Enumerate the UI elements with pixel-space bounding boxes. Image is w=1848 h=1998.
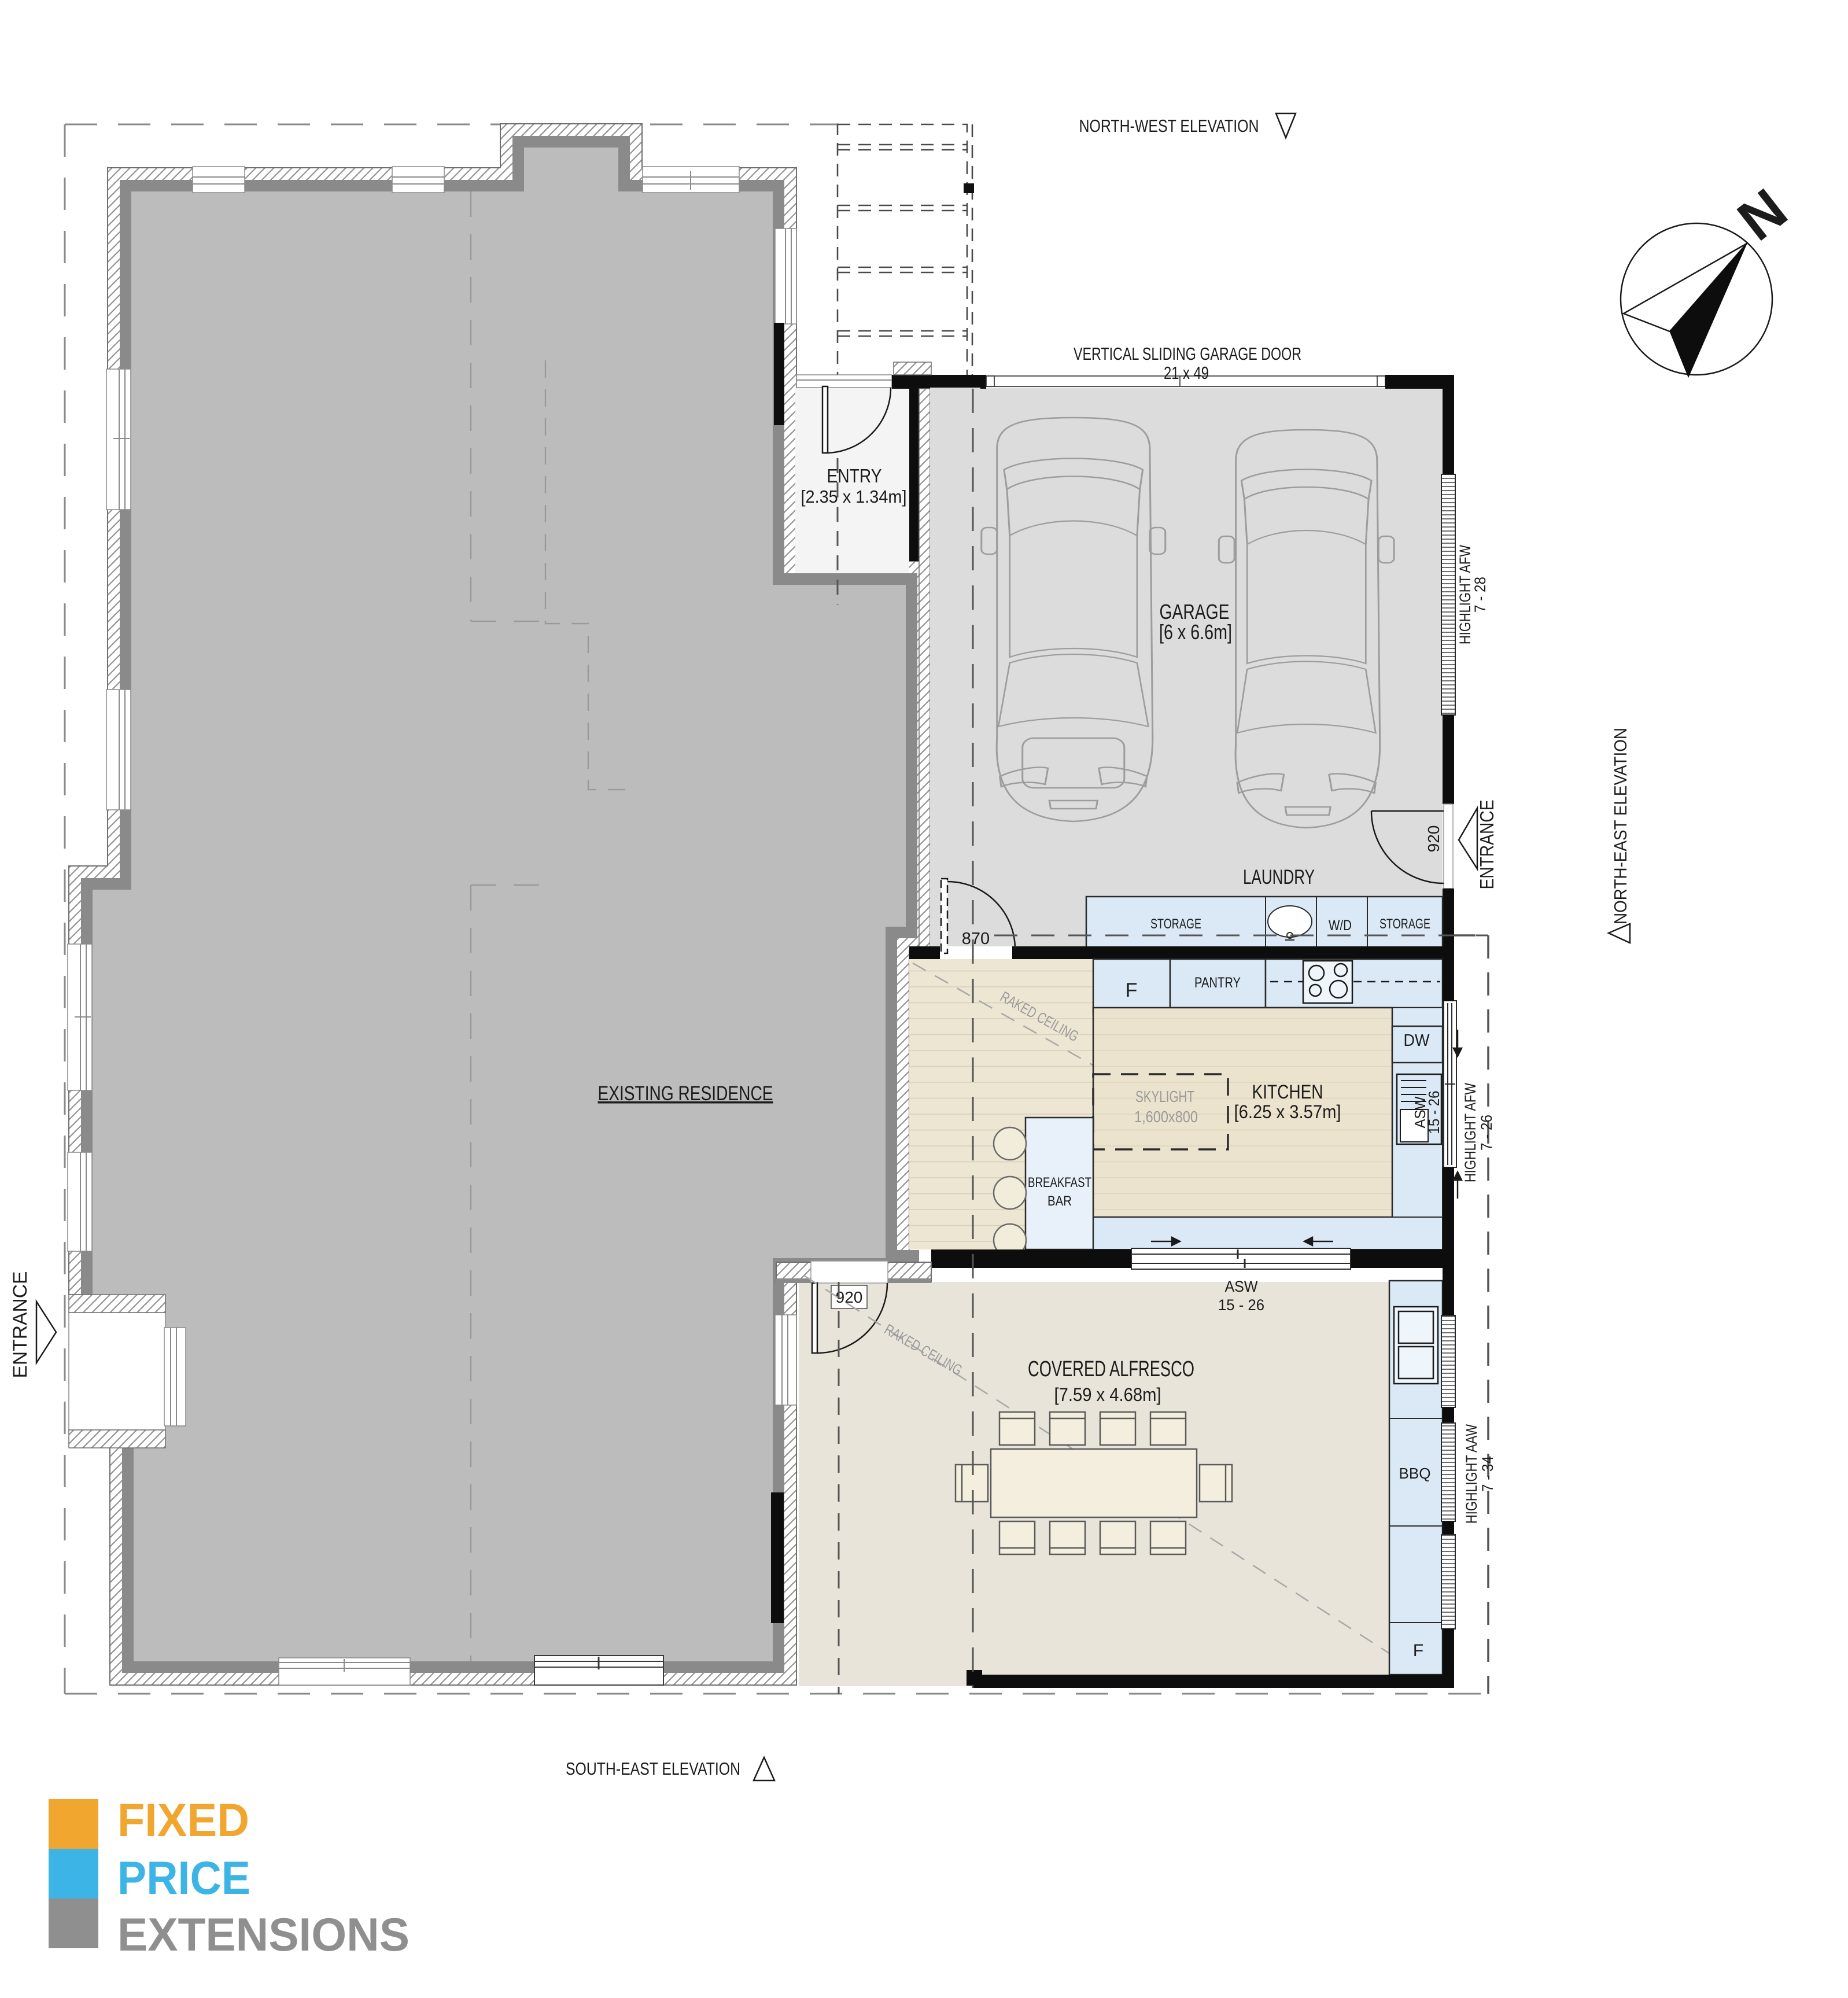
svg-text:7 - 28: 7 - 28 xyxy=(1471,577,1489,613)
svg-text:[6.25 x 3.57m]: [6.25 x 3.57m] xyxy=(1234,1101,1341,1122)
svg-text:PANTRY: PANTRY xyxy=(1194,975,1241,991)
svg-text:VERTICAL SLIDING GARAGE DOOR: VERTICAL SLIDING GARAGE DOOR xyxy=(1074,344,1301,364)
svg-text:BREAKFAST: BREAKFAST xyxy=(1028,1175,1091,1190)
svg-text:NORTH-WEST ELEVATION: NORTH-WEST ELEVATION xyxy=(1079,116,1259,136)
svg-text:[7.59 x 4.68m]: [7.59 x 4.68m] xyxy=(1054,1384,1161,1405)
svg-text:920: 920 xyxy=(836,1288,863,1306)
svg-text:EXTENSIONS: EXTENSIONS xyxy=(117,1909,410,1961)
svg-text:HIGHLIGHT AAW: HIGHLIGHT AAW xyxy=(1463,1424,1480,1524)
svg-text:ENTRY: ENTRY xyxy=(827,465,882,486)
svg-text:1,600x800: 1,600x800 xyxy=(1134,1108,1198,1126)
svg-text:BAR: BAR xyxy=(1047,1193,1072,1209)
svg-text:PRICE: PRICE xyxy=(117,1852,250,1904)
svg-text:920: 920 xyxy=(1425,825,1443,853)
svg-text:FIXED: FIXED xyxy=(117,1794,249,1846)
svg-text:W/D: W/D xyxy=(1329,917,1352,934)
svg-text:SOUTH-EAST ELEVATION: SOUTH-EAST ELEVATION xyxy=(566,1759,740,1779)
svg-text:15 - 26: 15 - 26 xyxy=(1218,1296,1264,1314)
svg-text:F: F xyxy=(1413,1641,1423,1660)
svg-text:STORAGE: STORAGE xyxy=(1150,916,1201,932)
svg-text:7 - 34: 7 - 34 xyxy=(1479,1456,1496,1492)
svg-text:F: F xyxy=(1126,979,1138,1001)
svg-text:LAUNDRY: LAUNDRY xyxy=(1243,866,1315,889)
svg-text:[6 x 6.6m]: [6 x 6.6m] xyxy=(1159,620,1232,644)
svg-text:7 - 26: 7 - 26 xyxy=(1478,1115,1495,1151)
svg-text:ENTRANCE: ENTRANCE xyxy=(1476,800,1497,890)
svg-text:STORAGE: STORAGE xyxy=(1379,916,1430,932)
svg-text:COVERED ALFRESCO: COVERED ALFRESCO xyxy=(1028,1357,1194,1381)
svg-text:ASW: ASW xyxy=(1225,1278,1258,1295)
svg-text:DW: DW xyxy=(1404,1031,1430,1050)
svg-text:SKYLIGHT: SKYLIGHT xyxy=(1135,1088,1194,1105)
svg-text:KITCHEN: KITCHEN xyxy=(1252,1081,1323,1103)
svg-text:15 - 26: 15 - 26 xyxy=(1425,1091,1443,1134)
svg-text:870: 870 xyxy=(962,930,990,948)
svg-text:BBQ: BBQ xyxy=(1399,1465,1431,1482)
svg-text:NORTH-EAST ELEVATION: NORTH-EAST ELEVATION xyxy=(1610,728,1631,924)
svg-text:EXISTING RESIDENCE: EXISTING RESIDENCE xyxy=(598,1082,773,1105)
svg-text:[2.35 x 1.34m]: [2.35 x 1.34m] xyxy=(801,486,907,507)
svg-text:HIGHLIGHT AFW: HIGHLIGHT AFW xyxy=(1462,1083,1479,1182)
svg-text:ENTRANCE: ENTRANCE xyxy=(9,1271,31,1378)
svg-text:21 x 49: 21 x 49 xyxy=(1164,363,1209,383)
